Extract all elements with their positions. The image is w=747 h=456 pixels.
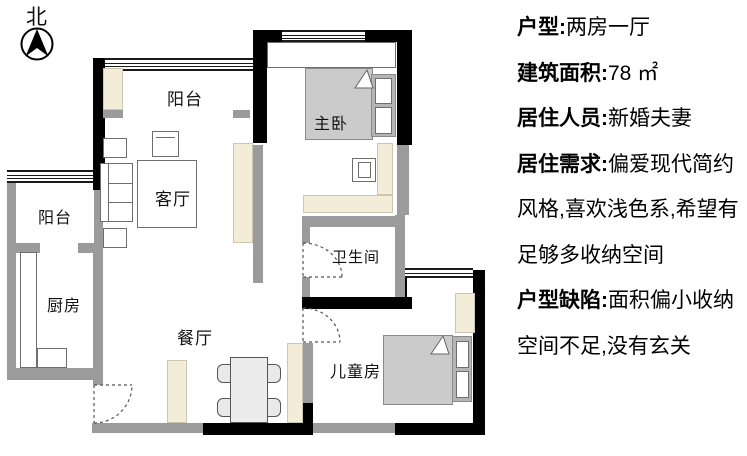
room-label-dining-room: 餐厅 [177, 324, 213, 349]
desk [352, 158, 376, 182]
info-panel: 户型:两房一厅 建筑面积:78 ㎡ 居住人员:新婚夫妻 居住需求:偏爱现代简约风… [517, 5, 746, 369]
wall-segment [303, 343, 313, 403]
nightstand-shelf [456, 371, 469, 398]
sofa-cushion-line [108, 183, 132, 184]
floor-plan: 北 [0, 0, 505, 456]
dining-chair [217, 398, 231, 417]
room-label-kitchen: 厨房 [47, 292, 81, 316]
storage-cabinet [303, 195, 393, 213]
floor-plan-page: 北 [0, 0, 747, 456]
sofa-cushion-line [108, 202, 132, 203]
sofa [100, 163, 133, 222]
info-value: 两房一厅 [566, 16, 650, 39]
wall-segment [253, 30, 267, 143]
window [405, 268, 473, 278]
room-label-living-room: 客厅 [155, 185, 191, 210]
kitchen-counter [20, 252, 37, 368]
wardrobe [267, 42, 396, 68]
balcony-cabinet [103, 68, 123, 110]
wall-segment [395, 423, 485, 435]
wall-segment [313, 423, 395, 433]
info-label: 户型: [517, 16, 566, 39]
wall-segment [103, 110, 123, 118]
wall-segment [92, 423, 203, 433]
wall-segment [397, 30, 412, 145]
kitchen-sink [37, 348, 67, 368]
sofa-side-table [103, 138, 127, 158]
desk-chair [358, 162, 371, 178]
armchair-back-line [156, 137, 175, 138]
info-item-residents: 居住人员:新婚夫妻 [517, 96, 746, 142]
info-item-area: 建筑面积:78 ㎡ [517, 51, 746, 97]
nightstand [371, 74, 396, 137]
dining-cabinet [167, 360, 187, 423]
wall-segment [302, 216, 405, 227]
nightstand [452, 336, 472, 402]
tv-cabinet [233, 143, 253, 243]
wall-segment [233, 110, 250, 118]
wall-segment [253, 30, 283, 42]
info-value: 新婚夫妻 [608, 107, 692, 130]
room-label-master-bedroom: 主卧 [314, 110, 348, 134]
nightstand-shelf [456, 341, 469, 368]
nightstand-shelf [375, 78, 392, 104]
info-label: 建筑面积: [517, 62, 608, 85]
wall-segment [397, 145, 409, 215]
wall-segment [93, 253, 103, 385]
info-label: 居住人员: [517, 107, 608, 130]
dining-chair [267, 398, 281, 417]
north-label: 北 [26, 1, 48, 31]
wall-segment [203, 423, 313, 435]
armchair [152, 131, 179, 157]
sofa-side-table [103, 228, 127, 248]
dining-table [230, 357, 268, 423]
kids-cabinet [455, 293, 475, 333]
dining-chair [267, 364, 281, 383]
room-label-balcony-top: 阳台 [167, 85, 203, 110]
nightstand-shelf [375, 107, 392, 134]
info-label: 户型缺陷: [517, 289, 608, 312]
wall-segment [302, 227, 310, 243]
info-item-needs: 居住需求:偏爱现代简约风格,喜欢浅色系,希望有足够多收纳空间 [517, 142, 746, 279]
info-item-layout: 户型:两房一厅 [517, 5, 746, 51]
wall-segment [253, 145, 263, 283]
wall-segment [302, 277, 310, 297]
wall-segment [303, 403, 313, 435]
room-label-kids-room: 儿童房 [330, 358, 381, 382]
storage-cabinet [377, 143, 393, 195]
room-label-bathroom: 卫生间 [332, 246, 380, 267]
info-label: 居住需求: [517, 153, 608, 176]
window [282, 30, 365, 42]
dining-chair [217, 364, 231, 383]
sofa-back-line [108, 164, 109, 221]
kids-bed [383, 335, 453, 405]
info-item-defects: 户型缺陷:面积偏小收纳空间不足,没有玄关 [517, 278, 746, 369]
wall-segment [7, 368, 103, 380]
wall-segment [7, 170, 16, 380]
window [105, 58, 253, 71]
room-label-balcony-left: 阳台 [38, 204, 72, 228]
window [7, 170, 93, 183]
wall-segment [395, 215, 405, 297]
info-value: 78 ㎡ [608, 62, 658, 85]
dining-cabinet [287, 343, 303, 423]
